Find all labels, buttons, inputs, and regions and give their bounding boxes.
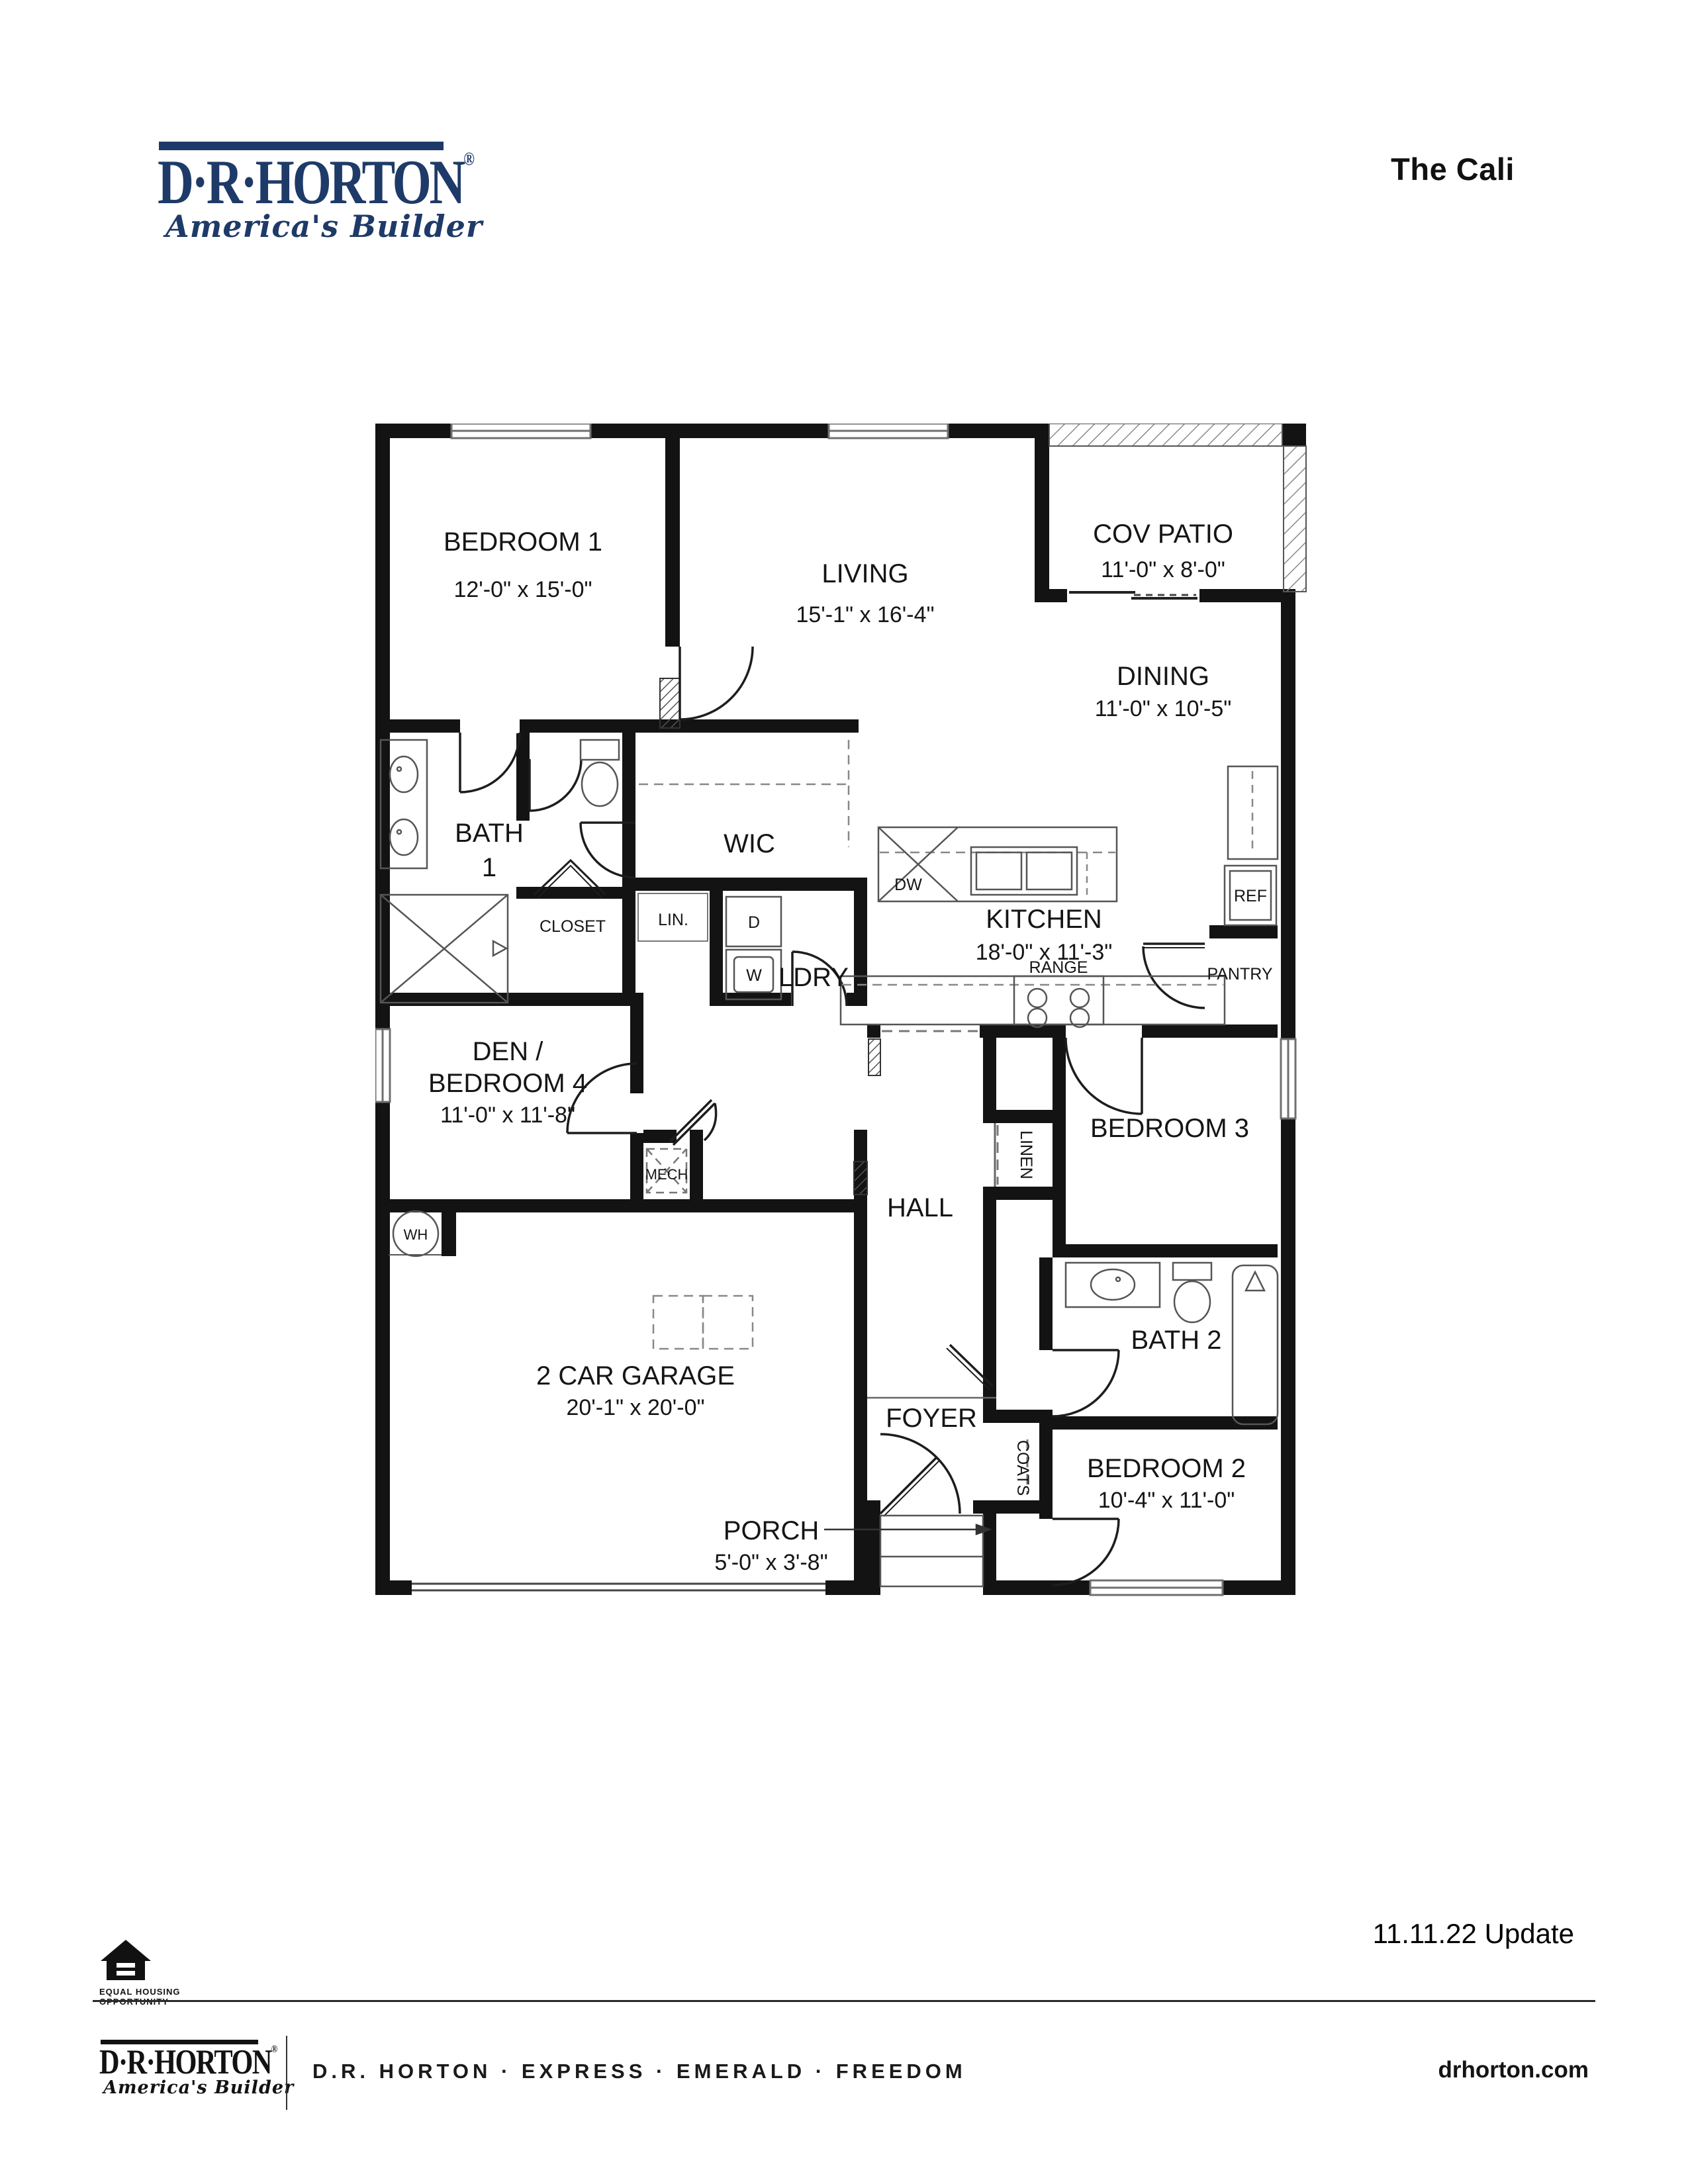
label-kitchen: KITCHEN <box>986 905 1102 934</box>
label-hall: HALL <box>887 1193 953 1222</box>
label-wh: WH <box>404 1226 428 1243</box>
bathtub <box>1233 1265 1278 1424</box>
label-bedroom2: BEDROOM 2 <box>1087 1454 1246 1483</box>
bath2-door <box>1053 1350 1119 1416</box>
dims-bedroom1: 12'-0" x 15'-0" <box>453 577 592 602</box>
dims-cov-patio: 11'-0" x 8'-0" <box>1101 557 1225 582</box>
bedroom1-door <box>680 647 753 719</box>
label-garage: 2 CAR GARAGE <box>536 1361 735 1390</box>
bath1-fixtures <box>381 740 619 1003</box>
floor-plan: BEDROOM 1 12'-0" x 15'-0" LIVING 15'-1" … <box>375 424 1309 1598</box>
dims-bedroom2: 10'-4" x 11'-0" <box>1098 1488 1235 1513</box>
den-window <box>375 1029 390 1102</box>
label-porch: PORCH <box>724 1516 819 1545</box>
toilet-room-door <box>530 759 581 811</box>
footer-logo-name: D·R·HORTON <box>99 2043 271 2081</box>
equal-housing-logo: EQUAL HOUSING OPPORTUNITY <box>99 1939 238 2007</box>
label-den-line2: BEDROOM 4 <box>428 1069 587 1098</box>
logo-name: D·R·HORTON <box>158 147 463 217</box>
page: { "header": { "brand": { "name": "D·R·HO… <box>0 0 1688 2184</box>
label-living: LIVING <box>821 559 908 588</box>
drhorton-logo: D·R·HORTON® America's Builder <box>158 142 554 244</box>
label-den-line1: DEN / <box>473 1037 544 1066</box>
label-closet: CLOSET <box>539 917 606 936</box>
label-coats: COATS <box>1013 1440 1032 1496</box>
dims-dining: 11'-0" x 10'-5" <box>1095 696 1232 721</box>
footer-website[interactable]: drhorton.com <box>1438 2057 1589 2083</box>
range-counter <box>841 976 1225 1027</box>
label-mech: MECH <box>645 1166 688 1183</box>
equal-housing-icon <box>99 1939 152 1983</box>
bath1-door <box>460 733 520 792</box>
label-linen: LINEN <box>1017 1130 1035 1179</box>
front-door <box>880 1434 960 1516</box>
footer-brands: D.R. HORTON · EXPRESS · EMERALD · FREEDO… <box>312 2060 966 2083</box>
label-dw: DW <box>894 876 922 894</box>
garage-attic-access <box>653 1296 753 1349</box>
footer-vertical-divider <box>286 2036 287 2110</box>
dims-living: 15'-1" x 16'-4" <box>796 602 934 627</box>
range <box>1014 976 1103 1027</box>
label-bedroom1: BEDROOM 1 <box>444 527 602 557</box>
bedroom2-door <box>1053 1519 1119 1585</box>
label-bath1-number: 1 <box>482 853 496 882</box>
logo-wordmark: D·R·HORTON® <box>158 150 475 214</box>
label-bedroom3: BEDROOM 3 <box>1090 1114 1249 1143</box>
bedroom3-door <box>1066 1038 1142 1114</box>
footer-logo-wordmark: D·R·HORTON® <box>99 2044 277 2080</box>
bedroom1-window <box>451 424 590 438</box>
registered-mark: ® <box>463 149 475 169</box>
update-note: 11.11.22 Update <box>1373 1918 1574 1950</box>
label-pantry: PANTRY <box>1207 965 1272 983</box>
footer-registered-mark: ® <box>271 2044 278 2055</box>
footer-drhorton-logo: D·R·HORTON® America's Builder <box>99 2040 322 2098</box>
bedroom2-window <box>1090 1580 1223 1595</box>
label-bath1: BATH <box>455 819 524 848</box>
label-foyer: FOYER <box>886 1404 977 1433</box>
kitchen-sink <box>971 847 1077 895</box>
eho-line2: OPPORTUNITY <box>99 1997 238 2007</box>
bedroom3-window <box>1281 1039 1295 1118</box>
label-ldry: LDRY <box>778 963 849 992</box>
label-ref: REF <box>1234 887 1267 905</box>
shower <box>381 895 508 1003</box>
page-title: The Cali <box>1391 151 1515 187</box>
living-window <box>829 424 948 438</box>
porch-arrow <box>824 1525 990 1534</box>
label-dining: DINING <box>1117 662 1209 691</box>
label-wic: WIC <box>724 829 775 858</box>
floor-plan-drawing: BEDROOM 1 12'-0" x 15'-0" LIVING 15'-1" … <box>375 424 1309 1598</box>
dims-garage: 20'-1" x 20'-0" <box>566 1395 704 1420</box>
eho-line1: EQUAL HOUSING <box>99 1987 238 1997</box>
label-washer: W <box>746 966 762 985</box>
footer-divider <box>93 2000 1595 2002</box>
label-dryer: D <box>748 913 760 932</box>
label-range: RANGE <box>1029 958 1088 977</box>
label-lin: LIN. <box>658 911 688 929</box>
porch-outline <box>880 1516 983 1586</box>
dims-den: 11'-0" x 11'-8" <box>440 1103 575 1128</box>
label-bath2: BATH 2 <box>1131 1326 1221 1355</box>
dims-porch: 5'-0" x 3'-8" <box>714 1550 827 1575</box>
label-cov-patio: COV PATIO <box>1093 520 1233 549</box>
